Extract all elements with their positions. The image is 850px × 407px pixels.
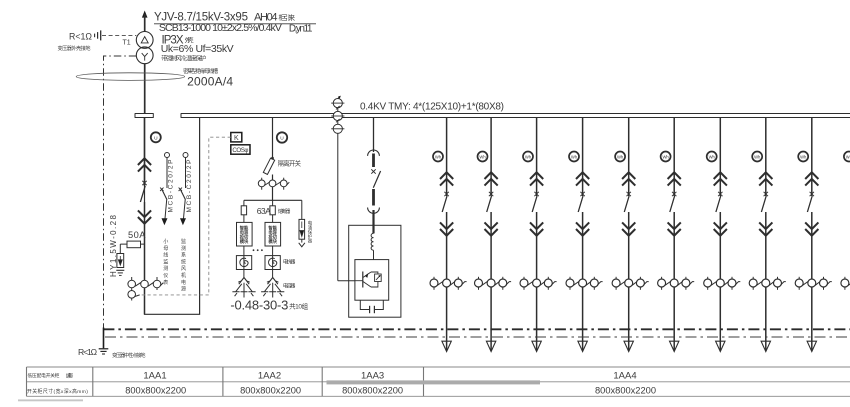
svg-text:变压器中性点接地: 变压器中性点接地 — [112, 352, 146, 359]
svg-text:U: U — [280, 136, 284, 142]
svg-text:密集型绝缘母线槽: 密集型绝缘母线槽 — [183, 67, 219, 75]
svg-text:隔离开关: 隔离开关 — [278, 158, 302, 167]
svg-text:变压器外壳接地: 变压器外壳接地 — [58, 45, 91, 52]
svg-text:800x800x2200: 800x800x2200 — [595, 386, 656, 396]
svg-text:63A: 63A — [257, 206, 271, 216]
svg-text:共10组: 共10组 — [289, 302, 309, 311]
svg-text:模块: 模块 — [240, 238, 249, 245]
svg-text:U: U — [154, 135, 158, 141]
svg-text:-0.48-30-3: -0.48-30-3 — [230, 298, 288, 313]
svg-text:HY1.5W-0.28: HY1.5W-0.28 — [109, 214, 118, 277]
svg-text:R<1Ω: R<1Ω — [78, 347, 98, 357]
svg-text:小母线监测仪表: 小母线监测仪表 — [163, 238, 168, 286]
svg-text:模块: 模块 — [268, 238, 277, 245]
svg-text:1AA2: 1AA2 — [258, 370, 281, 381]
svg-text:低压配电开关柜: 低压配电开关柜 — [28, 372, 60, 379]
svg-text:50A: 50A — [128, 230, 146, 240]
svg-text:MCB-C20/2P: MCB-C20/2P — [168, 160, 175, 213]
svg-text:电涌保护器: 电涌保护器 — [308, 219, 313, 244]
svg-text:柜引来: 柜引来 — [279, 13, 296, 22]
svg-text:监测系统风机电源: 监测系统风机电源 — [181, 238, 186, 293]
svg-text:0.4KV TMY: 4*(125X10)+1*(80X8): 0.4KV TMY: 4*(125X10)+1*(80X8) — [360, 102, 504, 113]
svg-text:MCB-C20/2P: MCB-C20/2P — [186, 160, 193, 213]
svg-text:COSφ: COSφ — [232, 147, 248, 154]
svg-text:熔断器: 熔断器 — [278, 207, 291, 215]
svg-text:1AA4: 1AA4 — [613, 370, 636, 381]
svg-text:1AA1: 1AA1 — [143, 370, 166, 381]
svg-text:800x800x2200: 800x800x2200 — [125, 386, 186, 396]
svg-text:电抗器: 电抗器 — [283, 257, 296, 265]
svg-text:D,yn11: D,yn11 — [289, 24, 313, 35]
svg-text:开关柜尺寸(宽x深x高mm): 开关柜尺寸(宽x深x高mm) — [27, 388, 88, 395]
svg-text:800x800x2200: 800x800x2200 — [342, 386, 403, 396]
svg-text:2000A/4: 2000A/4 — [187, 75, 233, 89]
svg-text:带强制风冷, 温度保护: 带强制风冷, 温度保护 — [161, 54, 206, 62]
svg-text:K: K — [234, 135, 239, 142]
svg-text:R<1Ω: R<1Ω — [69, 32, 92, 42]
svg-text:800x800x2200: 800x800x2200 — [240, 386, 301, 396]
svg-text:Uk=6% Uf=35kV: Uk=6% Uf=35kV — [161, 43, 234, 55]
svg-text:1AA3: 1AA3 — [361, 370, 384, 381]
svg-text:电容器: 电容器 — [283, 281, 296, 289]
svg-text:T1: T1 — [123, 39, 131, 46]
svg-text:SCB13-1000 10±2x2.5%/0.4kV: SCB13-1000 10±2x2.5%/0.4kV — [159, 22, 282, 34]
svg-text:编号: 编号 — [66, 373, 74, 380]
